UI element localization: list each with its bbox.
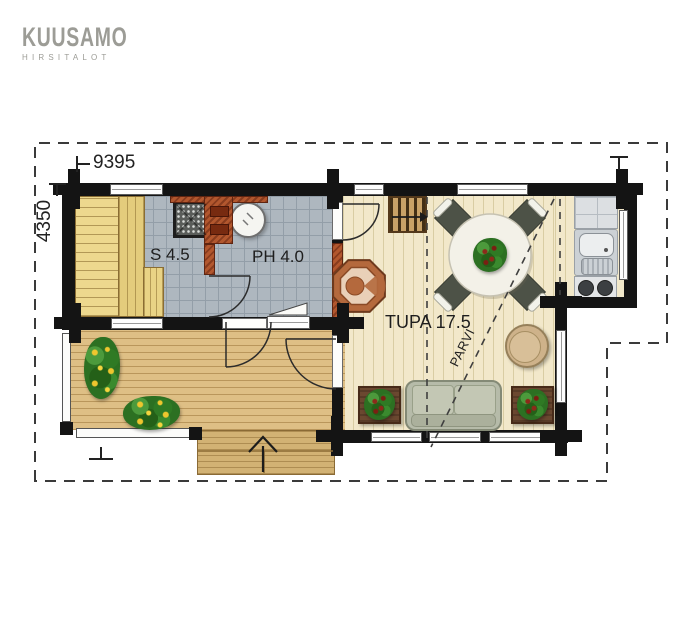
- chimney-block: [204, 196, 233, 244]
- sink-drainboard: [581, 258, 613, 275]
- kitchen-stove: [574, 276, 617, 299]
- railing-post: [60, 422, 73, 435]
- window-north-living-large: [457, 184, 528, 195]
- sauna-bench-step: [143, 267, 164, 317]
- terrace-plant-tall: [84, 337, 120, 399]
- railing-post: [189, 427, 202, 440]
- room-label-living: TUPA 17.5: [385, 312, 471, 333]
- stove-burner: [578, 280, 594, 296]
- loft-ladder: [388, 196, 427, 233]
- window-east-kitchen: [619, 210, 628, 280]
- chimney-flue: [210, 206, 229, 217]
- masonry-divider-wall: [204, 244, 215, 275]
- sauna-bench-upper: [75, 196, 119, 317]
- logo-title: KUUSAMO: [22, 24, 127, 51]
- terrace-plant-wide: [123, 396, 180, 430]
- window-north-living-small: [354, 184, 384, 195]
- sofa-back: [411, 414, 496, 427]
- sauna-bench-lower: [118, 196, 145, 317]
- window-north-sauna: [110, 184, 163, 195]
- dimension-width: 9395: [93, 152, 135, 174]
- chimney-flue: [210, 224, 229, 235]
- window-south-3: [489, 432, 550, 442]
- sink-bowl: [579, 233, 614, 257]
- masonry-fireplace-wall: [332, 243, 343, 326]
- sofa-cushion: [454, 385, 496, 415]
- window-south-2: [429, 432, 481, 442]
- wall-west: [62, 183, 75, 330]
- window-east-living: [556, 330, 566, 403]
- potted-plant: [517, 389, 548, 420]
- logo-subtitle: HIRSITALOT: [22, 53, 169, 62]
- armchair: [505, 324, 549, 368]
- window-washroom-terrace: [267, 316, 310, 329]
- room-label-sauna: S 4.5: [150, 245, 190, 265]
- floor-plan-canvas: KUUSAMO HIRSITALOT: [0, 0, 700, 644]
- kitchen-sink: [574, 229, 618, 276]
- sofa-cushion: [412, 385, 454, 415]
- door-opening-washroom-terrace: [222, 318, 267, 329]
- stove-burner: [597, 280, 613, 296]
- room-label-washroom: PH 4.0: [252, 247, 304, 267]
- sofa: [405, 380, 502, 431]
- window-south-1: [371, 432, 422, 442]
- washroom-basin: [230, 202, 266, 238]
- company-logo: KUUSAMO HIRSITALOT: [22, 24, 169, 62]
- window-sauna-terrace: [111, 318, 163, 329]
- terrace-railing-left: [62, 333, 71, 422]
- dimension-height: 4350: [34, 192, 56, 250]
- door-opening-washroom-living: [332, 202, 343, 240]
- door-opening-living-terrace: [332, 335, 343, 388]
- kitchen-counter: [574, 196, 618, 229]
- potted-plant: [364, 389, 395, 420]
- table-centerpiece-plant: [473, 238, 507, 272]
- entrance-steps: [197, 430, 335, 475]
